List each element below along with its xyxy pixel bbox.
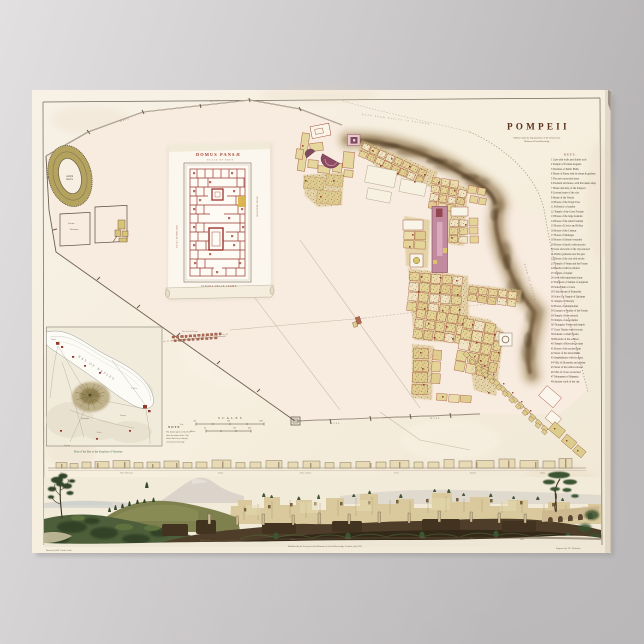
svg-text:Temple: Temple	[218, 473, 224, 475]
svg-text:Villa of Diomedes: Villa of Diomedes	[120, 472, 133, 475]
svg-text:Diffusion of Useful Knowledge.: Diffusion of Useful Knowledge.	[524, 140, 550, 143]
svg-text:Feet: Feet	[180, 424, 184, 426]
svg-text:50: 50	[204, 428, 206, 430]
svg-text:Engraved by T.E. Nicholson: Engraved by T.E. Nicholson	[556, 547, 582, 550]
svg-text:Forum: Forum	[290, 539, 295, 541]
svg-text:theatre: theatre	[66, 178, 74, 181]
svg-text:VICOLO DEL FAUNO: VICOLO DEL FAUNO	[256, 196, 259, 217]
svg-text:Gate: Gate	[470, 538, 474, 540]
svg-text:Vesuvius: Vesuvius	[81, 418, 89, 420]
svg-text:REFS.: REFS.	[564, 153, 577, 157]
svg-text:Temple of Isis: Temple of Isis	[200, 539, 211, 542]
svg-text:Theatre: Theatre	[540, 473, 546, 475]
svg-text:Naples: Naples	[51, 339, 56, 341]
svg-text:Forum: Forum	[68, 222, 75, 225]
svg-text:Forum: Forum	[394, 473, 399, 475]
svg-text:The darker parts of the Plan: The darker parts of the Plan	[166, 431, 191, 434]
svg-text:1000: 1000	[259, 421, 263, 423]
svg-text:Drawn by W.B. Clarke Archt.: Drawn by W.B. Clarke Archt.	[46, 549, 72, 552]
svg-text:SCALE OF FEET: SCALE OF FEET	[207, 159, 234, 162]
svg-text:500: 500	[227, 421, 230, 423]
svg-text:Basilica: Basilica	[470, 473, 476, 475]
svg-text:Bosco: Bosco	[97, 432, 102, 434]
svg-text:POMPEII: POMPEII	[507, 122, 570, 132]
svg-text:Published under the Superinten: Published under the Superintendence of t…	[513, 137, 560, 140]
svg-text:Sorrento: Sorrento	[64, 445, 70, 447]
svg-text:DOMUS PANSÆ: DOMUS PANSÆ	[196, 152, 241, 157]
svg-text:T. dell A.: T. dell A.	[131, 387, 138, 390]
svg-text:Pompeii: Pompeii	[120, 415, 126, 417]
svg-text:Street of the Tombs: Street of the Tombs	[182, 330, 198, 333]
svg-text:WALL: WALL	[330, 422, 341, 425]
svg-text:400: 400	[248, 428, 251, 430]
svg-text:WALL: WALL	[430, 417, 441, 420]
svg-text:Basilica: Basilica	[345, 538, 351, 540]
svg-text:excavated to this day.: excavated to this day.	[166, 441, 185, 443]
svg-text:SCALES: SCALES	[218, 416, 244, 420]
svg-text:House of Pansa: House of Pansa	[300, 472, 311, 475]
svg-text:which have been already: which have been already	[166, 438, 189, 440]
svg-text:Boarium: Boarium	[70, 228, 79, 231]
svg-text:Metres: Metres	[190, 431, 196, 433]
svg-text:100: 100	[193, 421, 196, 423]
svg-text:show the parts of the City: show the parts of the City	[166, 434, 189, 437]
svg-text:200: 200	[233, 428, 236, 430]
svg-text:NOTE: NOTE	[168, 425, 181, 429]
svg-text:Theatres: Theatres	[420, 537, 426, 539]
svg-text:Published by the Society for t: Published by the Society for the Diffusi…	[288, 545, 363, 548]
svg-text:Walls: Walls	[520, 539, 524, 541]
svg-text:STRADA DELLE TERME: STRADA DELLE TERME	[201, 285, 237, 288]
svg-text:VICOLO DI MERCURIO: VICOLO DI MERCURIO	[177, 224, 179, 248]
svg-text:Plan of the Bay at the Eruptio: Plan of the Bay at the Eruption of Vesuv…	[74, 451, 122, 454]
